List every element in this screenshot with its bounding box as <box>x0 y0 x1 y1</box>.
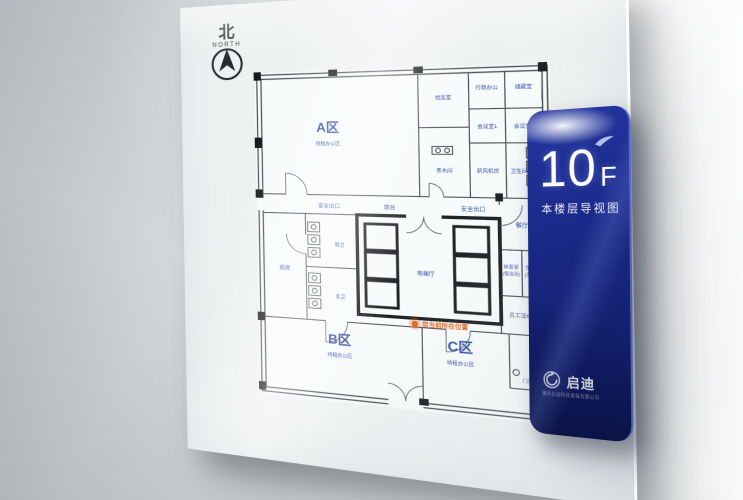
compass-north-icon: 北 NORTH <box>200 18 255 86</box>
floor-number: 10 F <box>539 143 629 193</box>
wall-scene: 北 NORTH <box>0 0 743 500</box>
floor-number-digits: 10 <box>539 144 597 192</box>
sign-board: 北 NORTH <box>180 8 572 462</box>
brand-name: 启迪 <box>567 371 596 393</box>
room-label-lounge: 休息室 <box>504 263 519 270</box>
zone-b-label: B区 <box>328 332 351 348</box>
brand-logo-icon <box>542 369 562 391</box>
zone-a-label: A区 <box>316 121 339 135</box>
floor-plan: A区 待租办公区 B区 待租办公区 C区 待租办公区 档案室 行政办公 储藏室 … <box>252 58 568 435</box>
compass-cn-label: 北 <box>218 23 235 43</box>
panel-swoosh-icon <box>594 133 615 149</box>
floor-panel: 10 F 本楼层导视图 启迪 重庆启迪科技发展有限公司 <box>527 112 630 434</box>
compass-arrow <box>219 49 235 72</box>
zone-a-sub: 待租办公区 <box>316 140 341 148</box>
compass-en-label: NORTH <box>212 41 241 49</box>
floor-panel-face: 10 F 本楼层导视图 启迪 重庆启迪科技发展有限公司 <box>527 105 634 443</box>
zone-c-label: C区 <box>448 339 474 356</box>
plan-paper <box>255 63 556 425</box>
floor-number-letter: F <box>600 164 617 189</box>
panel-subtitle: 本楼层导视图 <box>541 199 629 217</box>
